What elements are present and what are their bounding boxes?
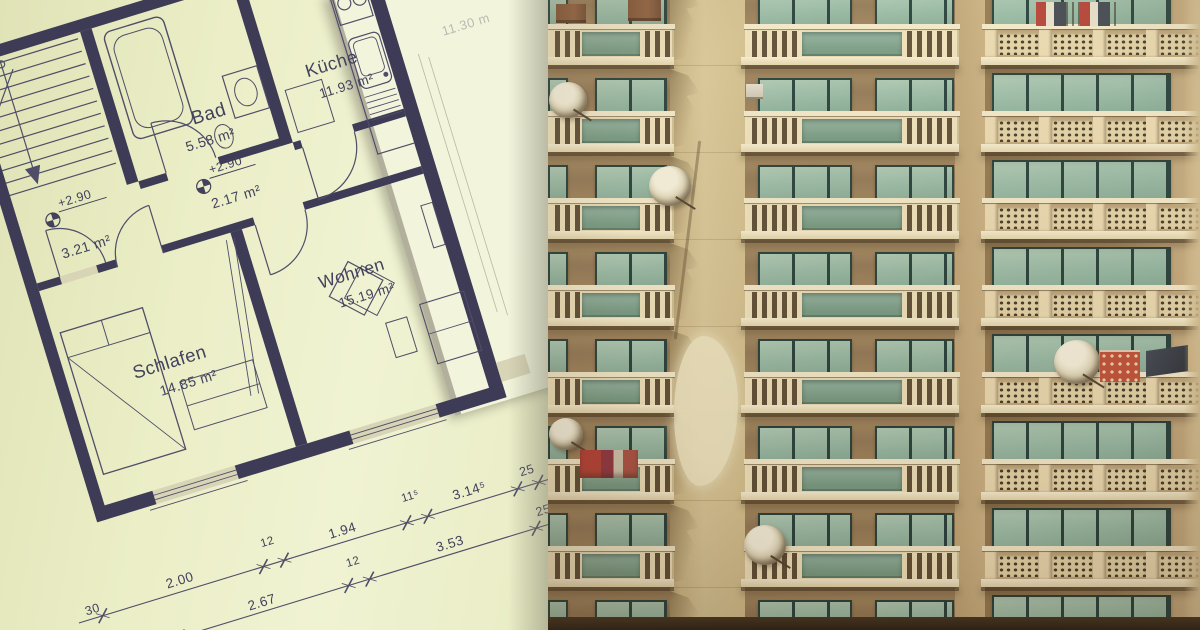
railing-lattice (998, 207, 1039, 229)
apartment-window (595, 339, 667, 376)
ac-unit (746, 84, 763, 99)
dimension-label: 2.00 (164, 569, 195, 592)
railing-balusters (550, 292, 582, 318)
balcony-slab (548, 144, 674, 152)
apartment-window (992, 73, 1171, 114)
apartment-window (548, 165, 568, 202)
railing-lattice (998, 33, 1039, 55)
railing-post (985, 29, 998, 57)
balcony-slab (741, 579, 959, 587)
railing-top-rail (548, 285, 675, 290)
railing-top-rail (744, 372, 960, 377)
apartment-window (548, 252, 568, 289)
laundry-items (580, 450, 638, 478)
railing-lattice (1052, 294, 1093, 316)
railing-post (985, 116, 998, 144)
building-photo (548, 0, 1200, 630)
railing-glass-panel (802, 32, 903, 56)
railing-post (1146, 203, 1159, 231)
balcony-railing (985, 549, 1200, 579)
balcony-railing (985, 201, 1200, 231)
apartment-window (992, 160, 1171, 201)
railing-post (1146, 116, 1159, 144)
railing-balusters (550, 379, 582, 405)
railing-post (1093, 29, 1106, 57)
apartment-window (758, 252, 852, 289)
balcony-slab (981, 144, 1200, 152)
dimension-label: 2.67 (246, 591, 277, 614)
laundry-items (1100, 350, 1140, 382)
railing-post (1093, 551, 1106, 579)
railing-top-rail (982, 285, 1200, 290)
railing-post (985, 377, 998, 405)
railing-lattice (1106, 468, 1147, 490)
railing-top-rail (548, 24, 675, 29)
balcony-slab (548, 405, 674, 413)
apartment-window (875, 426, 954, 463)
railing-post (1146, 464, 1159, 492)
railing-balusters (747, 379, 802, 405)
railing-glass-panel (582, 32, 641, 56)
facade-wall (955, 0, 985, 65)
balcony-railing (548, 375, 674, 405)
railing-glass-panel (802, 206, 903, 230)
railing-post (985, 464, 998, 492)
railing-lattice (1052, 120, 1093, 142)
edge-dimension-note: 11.30 m (440, 10, 492, 39)
apartment-window (595, 252, 667, 289)
balcony-railing (745, 288, 959, 318)
railing-post (985, 290, 998, 318)
railing-post (1039, 116, 1052, 144)
satellite-dish (744, 525, 786, 565)
railing-glass-panel (802, 293, 903, 317)
railing-post (1093, 290, 1106, 318)
balcony-slab (548, 231, 674, 239)
dimension-label: 30 (83, 601, 101, 619)
railing-lattice (1106, 120, 1147, 142)
balcony-railing (745, 201, 959, 231)
apartment-window (595, 78, 667, 115)
railing-balusters (747, 31, 802, 57)
balcony-railing (548, 288, 674, 318)
balcony-slab (548, 318, 674, 326)
balcony-railing (985, 462, 1200, 492)
floor-plan-drawing: Bad 5.58 m² Küche 11.93 m² 3.21 m² 2.17 … (0, 0, 548, 630)
railing-balusters (902, 466, 957, 492)
railing-post (1039, 464, 1052, 492)
railing-top-rail (744, 111, 960, 116)
balcony-railing (745, 462, 959, 492)
balcony-slab (741, 231, 959, 239)
railing-balusters (640, 205, 672, 231)
dimension-label: 1.94 (327, 519, 358, 542)
apartment-window (758, 339, 852, 376)
apartment-window (875, 513, 954, 550)
balcony-slab (741, 405, 959, 413)
apartment-window (875, 165, 954, 202)
paper-edge-shadow (508, 0, 548, 630)
railing-top-rail (982, 459, 1200, 464)
railing-glass-panel (582, 119, 641, 143)
railing-top-rail (744, 285, 960, 290)
railing-balusters (902, 31, 957, 57)
split-hero-image: Bad 5.58 m² Küche 11.93 m² 3.21 m² 2.17 … (0, 0, 1200, 630)
railing-lattice (1106, 207, 1147, 229)
railing-lattice (1106, 294, 1147, 316)
railing-post (1146, 29, 1159, 57)
railing-glass-panel (802, 119, 903, 143)
railing-lattice (998, 468, 1039, 490)
railing-post (1146, 377, 1159, 405)
apartment-window (992, 421, 1171, 462)
satellite-dish (549, 418, 583, 450)
laundry-items (1036, 2, 1120, 26)
railing-top-rail (982, 198, 1200, 203)
railing-glass-panel (802, 554, 903, 578)
floor-plan: Bad 5.58 m² Küche 11.93 m² 3.21 m² 2.17 … (0, 0, 548, 630)
apartment-window (548, 339, 568, 376)
balcony-slab (548, 492, 674, 500)
facade-wall (955, 239, 985, 326)
apartment-window (758, 165, 852, 202)
balcony-railing (745, 114, 959, 144)
railing-lattice (998, 120, 1039, 142)
railing-balusters (902, 118, 957, 144)
railing-lattice (998, 294, 1039, 316)
balcony-slab (741, 492, 959, 500)
apartment-window (875, 339, 954, 376)
livingroom-furniture (312, 201, 482, 388)
balcony-railing (548, 201, 674, 231)
balcony-railing (548, 549, 674, 579)
dimension-label: 12 (345, 554, 362, 570)
railing-balusters (747, 118, 802, 144)
railing-lattice (1106, 555, 1147, 577)
railing-lattice (1052, 33, 1093, 55)
area-label-bad: 5.58 m² (184, 124, 237, 154)
railing-lattice (1052, 381, 1093, 403)
railing-post (1093, 203, 1106, 231)
railing-balusters (550, 31, 582, 57)
railing-lattice (1106, 33, 1147, 55)
railing-post (1146, 290, 1159, 318)
railing-lattice (1052, 555, 1093, 577)
balcony-slab (981, 492, 1200, 500)
area-label-corridor: 2.17 m² (209, 181, 262, 211)
railing-post (1039, 377, 1052, 405)
balcony-railing (985, 27, 1200, 57)
balcony-slab (741, 57, 959, 65)
railing-balusters (640, 118, 672, 144)
balcony-railing (745, 27, 959, 57)
railing-post (985, 551, 998, 579)
railing-balusters (902, 205, 957, 231)
railing-balusters (747, 205, 802, 231)
railing-post (1039, 29, 1052, 57)
railing-glass-panel (582, 554, 641, 578)
balcony-slab (548, 57, 674, 65)
railing-top-rail (548, 372, 675, 377)
railing-lattice (1052, 468, 1093, 490)
railing-top-rail (744, 459, 960, 464)
facade-wall (955, 326, 985, 413)
railing-post (1093, 116, 1106, 144)
railing-post (1039, 551, 1052, 579)
railing-glass-panel (802, 467, 903, 491)
balcony-railing (745, 375, 959, 405)
facade-wall (955, 65, 985, 152)
railing-balusters (902, 379, 957, 405)
apartment-window (758, 426, 852, 463)
railing-glass-panel (582, 380, 641, 404)
satellite-dish (549, 82, 587, 118)
railing-post (1039, 203, 1052, 231)
apartment-window (595, 513, 667, 550)
balcony-railing (985, 288, 1200, 318)
railing-balusters (550, 118, 582, 144)
sunlit-corner (1184, 0, 1200, 617)
railing-balusters (550, 205, 582, 231)
railing-top-rail (744, 24, 960, 29)
balcony-slab (981, 579, 1200, 587)
railing-balusters (902, 553, 957, 579)
railing-balusters (640, 466, 672, 492)
railing-lattice (1052, 207, 1093, 229)
railing-balusters (747, 466, 802, 492)
dimension-label: 11⁵ (400, 488, 421, 505)
balcony-railing (985, 114, 1200, 144)
apartment-window (992, 247, 1171, 288)
railing-top-rail (548, 546, 675, 551)
railing-post (1039, 290, 1052, 318)
balcony-railing (548, 114, 674, 144)
satellite-dish (649, 166, 691, 206)
railing-lattice (998, 555, 1039, 577)
railing-balusters (640, 31, 672, 57)
facade-wall (955, 500, 985, 587)
railing-balusters (640, 379, 672, 405)
storage-cabinet (556, 4, 586, 23)
balcony-slab (981, 318, 1200, 326)
apartment-window (875, 78, 954, 115)
satellite-dish (1054, 340, 1100, 384)
railing-lattice (1106, 381, 1147, 403)
apartment-window (875, 252, 954, 289)
railing-glass-panel (582, 293, 641, 317)
bedroom-furniture (60, 281, 272, 474)
balcony-railing (548, 27, 674, 57)
apartment-window (992, 508, 1171, 549)
walls (0, 0, 507, 522)
balcony-slab (741, 144, 959, 152)
railing-post (1093, 464, 1106, 492)
railing-post (1146, 551, 1159, 579)
railing-balusters (640, 292, 672, 318)
railing-balusters (550, 466, 582, 492)
storage-cabinet (628, 0, 661, 21)
railing-balusters (747, 292, 802, 318)
railing-post (985, 203, 998, 231)
railing-balusters (902, 292, 957, 318)
balcony-slab (741, 318, 959, 326)
railing-glass-panel (582, 206, 641, 230)
balcony-slab (981, 231, 1200, 239)
railing-lattice (998, 381, 1039, 403)
apartment-window (758, 78, 852, 115)
floorplan-sheet: Bad 5.58 m² Küche 11.93 m² 3.21 m² 2.17 … (0, 0, 548, 630)
dimension-label: 12 (259, 535, 276, 551)
apartment-window (548, 513, 568, 550)
balcony-slab (981, 405, 1200, 413)
railing-balusters (550, 553, 582, 579)
railing-balusters (640, 553, 672, 579)
balcony-slab (981, 57, 1200, 65)
facade-wall (955, 152, 985, 239)
railing-top-rail (982, 111, 1200, 116)
facade-wall (955, 413, 985, 500)
railing-top-rail (982, 546, 1200, 551)
railing-top-rail (744, 198, 960, 203)
railing-glass-panel (802, 380, 903, 404)
ground-shadow (548, 617, 1200, 630)
balcony-slab (548, 579, 674, 587)
